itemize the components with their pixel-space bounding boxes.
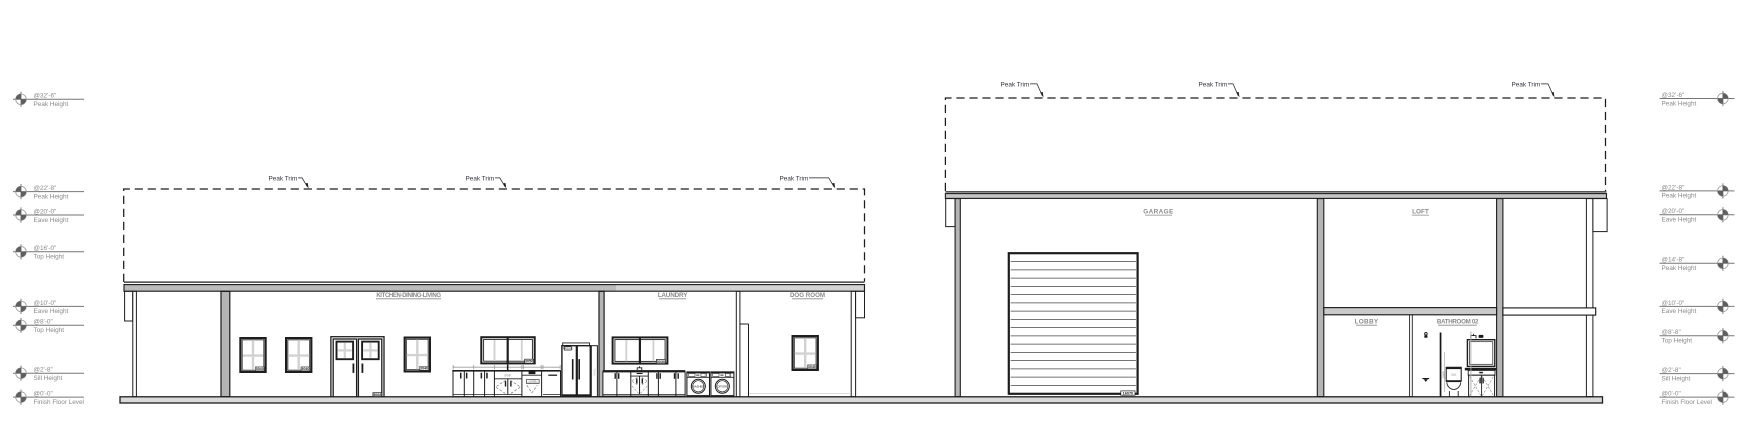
svg-text:5030: 5030 — [657, 360, 665, 364]
svg-text:@2'-8": @2'-8" — [1662, 367, 1681, 374]
svg-text:@20'-0": @20'-0" — [34, 208, 57, 215]
svg-text:Eave Height: Eave Height — [1662, 217, 1697, 224]
svg-text:Eave Height: Eave Height — [34, 217, 69, 224]
svg-text:@0'-0": @0'-0" — [1662, 391, 1681, 398]
svg-text:@22'-8": @22'-8" — [1662, 184, 1685, 191]
svg-text:FRIDGE: FRIDGE — [563, 347, 573, 351]
svg-text:@32'-6": @32'-6" — [1662, 92, 1685, 99]
svg-text:Peak Trim: Peak Trim — [780, 175, 809, 182]
svg-text:Peak Height: Peak Height — [1662, 193, 1697, 200]
svg-text:@14'-8": @14'-8" — [1662, 257, 1685, 264]
svg-text:WASHER: WASHER — [692, 384, 704, 388]
svg-text:Top Height: Top Height — [34, 327, 65, 334]
svg-text:DOG ROOM: DOG ROOM — [790, 292, 825, 299]
svg-text:@20'-0": @20'-0" — [1662, 208, 1685, 215]
svg-text:@10'-0": @10'-0" — [34, 300, 57, 307]
svg-text:@10'-0": @10'-0" — [1662, 300, 1685, 307]
svg-text:16070: 16070 — [1123, 392, 1134, 396]
svg-text:LOBBY: LOBBY — [1355, 319, 1379, 326]
svg-text:WARMER: WARMER — [527, 381, 538, 384]
svg-text:@22'-8": @22'-8" — [34, 185, 57, 192]
svg-text:Top Height: Top Height — [1662, 338, 1693, 345]
svg-text:Eave Height: Eave Height — [1662, 308, 1697, 315]
svg-text:SINK: SINK — [504, 373, 512, 377]
svg-text:PANEL: PANEL — [594, 367, 597, 376]
svg-text:Finish Floor Level: Finish Floor Level — [34, 399, 84, 406]
svg-text:3040: 3040 — [808, 365, 816, 369]
svg-text:Sill Height: Sill Height — [34, 375, 63, 382]
svg-text:2868: 2868 — [1442, 371, 1446, 378]
svg-text:3040: 3040 — [420, 367, 428, 371]
svg-text:@0'-0": @0'-0" — [34, 391, 53, 398]
svg-text:3040: 3040 — [301, 367, 309, 371]
svg-text:3040: 3040 — [256, 367, 264, 371]
svg-text:DRYER: DRYER — [717, 384, 727, 388]
svg-text:Top Height: Top Height — [34, 254, 65, 261]
svg-text:@2'-8": @2'-8" — [34, 367, 53, 374]
svg-text:@16'-0": @16'-0" — [34, 245, 57, 252]
svg-text:Peak Height: Peak Height — [34, 101, 69, 108]
svg-text:GARAGE: GARAGE — [1143, 209, 1174, 216]
svg-text:Peak Height: Peak Height — [34, 193, 69, 200]
svg-text:Peak Trim: Peak Trim — [466, 175, 495, 182]
svg-text:Eave Height: Eave Height — [34, 308, 69, 315]
svg-text:@32'-6": @32'-6" — [34, 93, 57, 100]
svg-text:@8'-0": @8'-0" — [34, 319, 53, 326]
svg-text:LOFT: LOFT — [1412, 209, 1429, 216]
svg-text:@8'-8": @8'-8" — [1662, 329, 1681, 336]
svg-text:Peak Trim: Peak Trim — [1001, 81, 1030, 88]
svg-text:Finish Floor Level: Finish Floor Level — [1662, 399, 1712, 406]
svg-text:Peak Height: Peak Height — [1662, 265, 1697, 272]
svg-text:KITCHEN-DINING-LIVING: KITCHEN-DINING-LIVING — [376, 293, 441, 299]
svg-text:BATHROOM 02: BATHROOM 02 — [1437, 319, 1479, 326]
svg-text:3050: 3050 — [525, 360, 533, 364]
svg-text:Peak Height: Peak Height — [1662, 100, 1697, 107]
svg-text:Peak Trim: Peak Trim — [1512, 81, 1541, 88]
svg-text:Peak Trim: Peak Trim — [1199, 81, 1228, 88]
svg-text:Peak Trim: Peak Trim — [269, 175, 298, 182]
svg-text:Sill Height: Sill Height — [1662, 375, 1691, 382]
svg-text:LAUNDRY: LAUNDRY — [658, 292, 689, 299]
